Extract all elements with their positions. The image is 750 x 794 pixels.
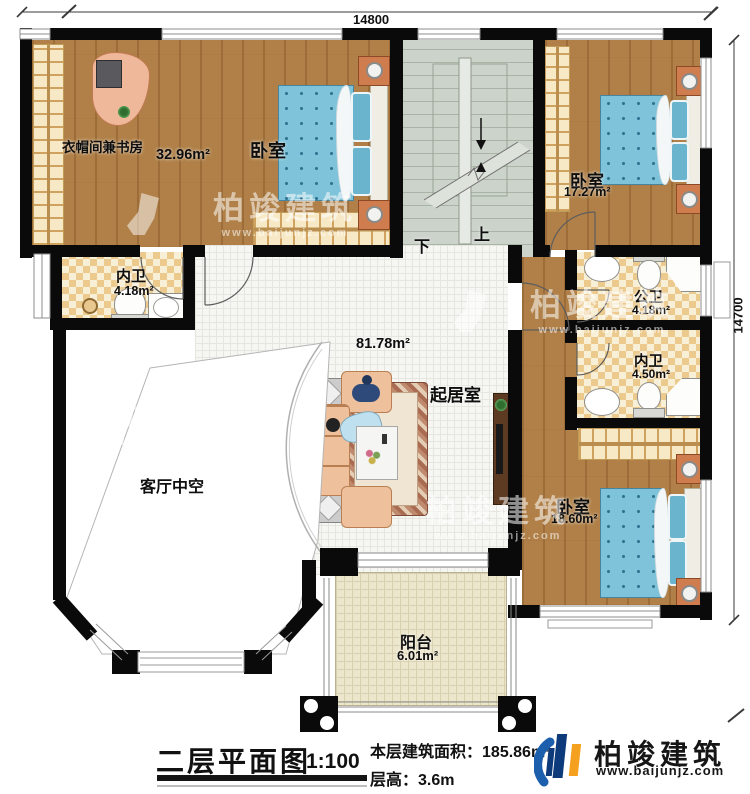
floor-area-line: 本层建筑面积：185.86m²	[370, 738, 551, 762]
wall	[480, 28, 557, 40]
floor-area-label: 本层建筑面积：	[370, 744, 482, 761]
wall	[50, 250, 62, 320]
wall	[565, 320, 712, 330]
room-label-bath-left: 内卫	[116, 265, 146, 286]
room-area-study: 32.96m²	[156, 147, 210, 163]
room-label-living: 起居室	[430, 381, 481, 406]
window-sill	[548, 620, 652, 628]
stair-label-up: 上	[474, 221, 490, 245]
void-opening-outline	[66, 342, 330, 654]
wall	[390, 28, 403, 258]
wall	[253, 245, 390, 257]
wall	[508, 245, 522, 283]
room-area-bedroom-bottom: 18.60m²	[551, 512, 598, 526]
wall	[320, 548, 358, 576]
wall	[595, 245, 712, 257]
wall-bay-corner	[112, 650, 140, 674]
dimension-top: 14800	[353, 12, 389, 27]
window-sill	[714, 262, 730, 318]
stair-rail	[459, 58, 471, 244]
room-label-void: 客厅中空	[140, 473, 204, 497]
wall	[700, 28, 712, 58]
floor-height-line: 层高：3.6m	[370, 766, 454, 790]
floor-height-label: 层高：	[370, 772, 418, 789]
wall	[533, 28, 545, 257]
wall	[508, 605, 540, 618]
room-area-bath-public: 4.18m²	[632, 303, 670, 317]
company-logo-site: www.baijunjz.com	[596, 763, 724, 778]
wall	[700, 316, 712, 480]
room-area-bath-inner: 4.50m²	[632, 367, 670, 381]
wall	[508, 330, 522, 570]
wall	[565, 418, 712, 428]
room-area-living: 81.78m²	[356, 336, 410, 352]
wall	[700, 148, 712, 265]
wall	[660, 605, 712, 618]
balcony-posts	[300, 696, 536, 732]
company-logo-icon	[534, 726, 594, 788]
wall	[50, 28, 162, 40]
wall	[53, 318, 66, 600]
wall-bay-corner	[244, 650, 272, 674]
title-underline	[157, 775, 367, 781]
floor-plan: 衣帽间兼书房 32.96m² 卧室 卧室 17.27m² 内卫 4.18m² 公…	[0, 0, 750, 794]
wall	[565, 250, 577, 290]
wall	[20, 28, 32, 258]
stair-details	[424, 58, 530, 244]
plan-scale: 1:100	[306, 750, 360, 774]
room-area-bath-left: 4.18m²	[114, 284, 154, 298]
room-area-balcony: 6.01m²	[397, 648, 438, 663]
wall	[488, 548, 520, 576]
room-area-bedroom-right: 17.27m²	[564, 185, 611, 199]
walls-and-annotations	[0, 0, 750, 794]
floor-height-value: 3.6m	[418, 772, 454, 789]
room-label-study: 衣帽间兼书房	[62, 136, 143, 156]
dimension-right: 14700	[731, 286, 746, 346]
plan-title: 二层平面图	[156, 740, 311, 780]
room-label-bedroom-top: 卧室	[250, 137, 286, 163]
title-underline-2	[157, 785, 367, 787]
wall	[533, 245, 550, 257]
wall	[50, 318, 195, 330]
stair-arrow	[476, 140, 486, 150]
stair-label-down: 下	[414, 233, 430, 257]
wall	[342, 28, 418, 40]
